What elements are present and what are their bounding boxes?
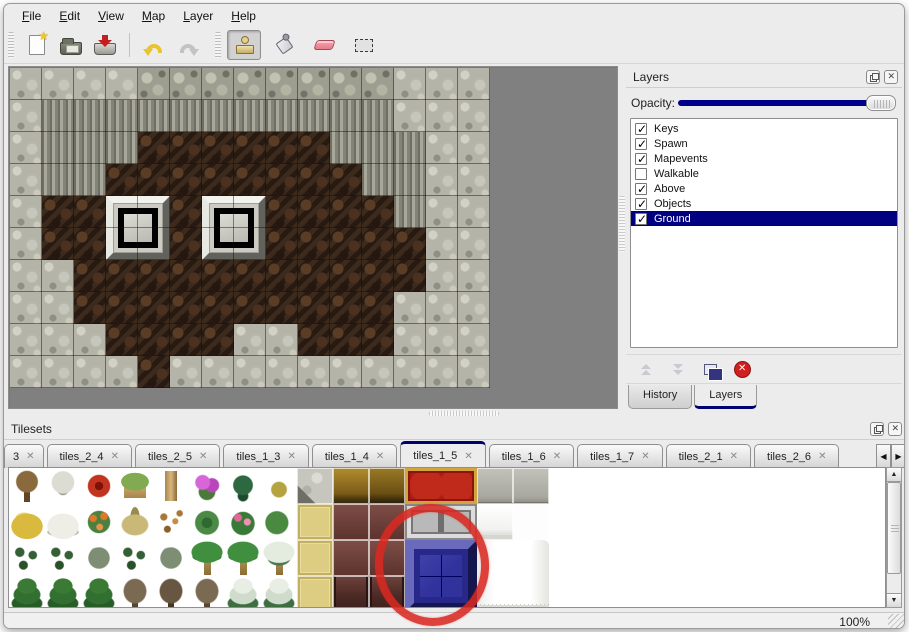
map-tile[interactable]: [10, 228, 42, 260]
tab-close-icon[interactable]: ✕: [26, 451, 34, 462]
menu-item-map[interactable]: Map: [134, 7, 173, 25]
scroll-down-icon[interactable]: ▼: [887, 593, 901, 607]
map-tile[interactable]: [170, 164, 202, 196]
toolbar-drag-handle-2[interactable]: [215, 32, 221, 58]
map-tile[interactable]: [298, 228, 330, 260]
duplicate-icon: [704, 364, 717, 375]
map-tile[interactable]: [106, 324, 138, 356]
tileset-tile-frame-silver[interactable]: [405, 504, 477, 540]
map-tile[interactable]: [458, 164, 490, 196]
tileset-tile-tree-dead[interactable]: [117, 576, 153, 608]
tileset-tab-tiles_1_6[interactable]: tiles_1_6 ✕: [489, 444, 574, 468]
tileset-tile-table-dark[interactable]: [369, 504, 405, 540]
layer-visibility-checkbox[interactable]: [635, 153, 647, 165]
map-tile[interactable]: [10, 260, 42, 292]
tileset-tab-tiles_1_3[interactable]: tiles_1_3 ✕: [223, 444, 308, 468]
layer-row-ground[interactable]: Ground: [631, 211, 897, 226]
scroll-up-icon[interactable]: ▲: [887, 468, 901, 482]
map-tile[interactable]: [234, 68, 266, 100]
tileset-tile-palm-snow[interactable]: [261, 540, 297, 576]
map-tile[interactable]: [362, 260, 394, 292]
tileset-tab-tiles_1_5[interactable]: tiles_1_5 ✕: [400, 441, 485, 468]
dock-tab-layers[interactable]: Layers: [694, 385, 757, 409]
map-tile[interactable]: [10, 196, 42, 228]
layer-name-label: Ground: [654, 213, 691, 225]
menu-item-edit[interactable]: Edit: [51, 7, 88, 25]
tileset-content[interactable]: [8, 467, 886, 608]
tileset-tile-lilypad-curl[interactable]: [261, 504, 297, 540]
map-tile[interactable]: [42, 356, 74, 388]
map-tile[interactable]: [170, 68, 202, 100]
map-tile[interactable]: [202, 100, 234, 132]
map-tile[interactable]: [234, 324, 266, 356]
map-tile[interactable]: [266, 324, 298, 356]
map-tile[interactable]: [10, 68, 42, 100]
map-tile[interactable]: [170, 100, 202, 132]
map-tile[interactable]: [138, 164, 170, 196]
save-file-button[interactable]: [88, 30, 122, 60]
map-tile[interactable]: [74, 164, 106, 196]
map-tile[interactable]: [298, 324, 330, 356]
map-tile[interactable]: [426, 68, 458, 100]
map-tile[interactable]: [426, 356, 458, 388]
tileset-tab-bar: 3 ✕ tiles_2_4 ✕ tiles_2_5 ✕ tiles_1_3 ✕ …: [4, 440, 905, 468]
tileset-tile-blue-tile[interactable]: [405, 540, 477, 608]
map-tile[interactable]: [394, 228, 426, 260]
tileset-tab-tiles_1_7[interactable]: tiles_1_7 ✕: [577, 444, 662, 468]
map-tile[interactable]: [10, 292, 42, 324]
tab-close-icon[interactable]: ✕: [111, 451, 119, 462]
map-tile[interactable]: [330, 228, 362, 260]
map-tile[interactable]: [362, 164, 394, 196]
tab-close-icon[interactable]: ✕: [818, 451, 826, 462]
open-file-button[interactable]: [54, 30, 88, 60]
map-tile[interactable]: [362, 356, 394, 388]
layer-duplicate-button[interactable]: [700, 359, 720, 379]
map-tile[interactable]: [394, 324, 426, 356]
map-tile[interactable]: [266, 260, 298, 292]
tileset-tile-mound-snow[interactable]: [45, 504, 81, 540]
map-tile[interactable]: [234, 292, 266, 324]
layers-panel-title: Layers: [626, 70, 866, 84]
layer-row-walkable[interactable]: Walkable: [631, 166, 897, 181]
tileset-tile-sprigs[interactable]: [117, 540, 153, 576]
map-tile[interactable]: [74, 132, 106, 164]
map-tile[interactable]: [426, 324, 458, 356]
map-tile[interactable]: [458, 356, 490, 388]
tileset-tile-stone-gray[interactable]: [477, 468, 513, 504]
map-tile[interactable]: [170, 260, 202, 292]
tileset-tab-label: tiles_1_5: [413, 450, 457, 462]
tileset-tile-sprigs[interactable]: [9, 540, 45, 576]
tileset-tab-label: tiles_2_4: [60, 451, 104, 463]
map-tile[interactable]: [330, 324, 362, 356]
map-tile[interactable]: [458, 260, 490, 292]
map-tile[interactable]: [426, 228, 458, 260]
save-icon: [94, 43, 116, 55]
tab-close-icon[interactable]: ✕: [199, 451, 207, 462]
fill-tool-button[interactable]: [267, 30, 301, 60]
map-tile[interactable]: [458, 68, 490, 100]
tileset-tile-bush-gray[interactable]: [81, 540, 117, 576]
map-tile[interactable]: [266, 228, 298, 260]
map-tile[interactable]: [170, 196, 202, 228]
tileset-tile-floor-gold[interactable]: [297, 540, 333, 576]
map-tile[interactable]: [10, 132, 42, 164]
map-tile[interactable]: [330, 196, 362, 228]
layer-visibility-checkbox[interactable]: [635, 213, 647, 225]
layers-titlebar: Layers: [626, 66, 902, 88]
map-tile[interactable]: [42, 228, 74, 260]
map-tile[interactable]: [394, 196, 426, 228]
opacity-slider[interactable]: [678, 94, 896, 112]
tileset-tile-table-dark[interactable]: [369, 540, 405, 576]
map-tile[interactable]: [298, 292, 330, 324]
eraser-icon: [313, 40, 335, 50]
select-tool-button[interactable]: [347, 30, 381, 60]
layer-visibility-checkbox[interactable]: [635, 198, 647, 210]
tileset-tile-pine[interactable]: [9, 576, 45, 608]
map-tile[interactable]: [330, 132, 362, 164]
layer-raise-button[interactable]: [636, 359, 656, 379]
map-tile[interactable]: [234, 164, 266, 196]
tileset-tile-floor-gold[interactable]: [297, 576, 333, 608]
tileset-tile-bush-pink[interactable]: [189, 468, 225, 504]
map-tile[interactable]: [362, 324, 394, 356]
undo-button[interactable]: [137, 30, 171, 60]
map-tile[interactable]: [42, 132, 74, 164]
map-tile[interactable]: [362, 196, 394, 228]
splitter-handle[interactable]: [429, 411, 499, 416]
map-tile[interactable]: [394, 356, 426, 388]
tab-close-icon[interactable]: ✕: [376, 451, 384, 462]
layer-row-above[interactable]: Above: [631, 181, 897, 196]
map-tile[interactable]: [42, 68, 74, 100]
tileset-tile-stump[interactable]: [117, 468, 153, 504]
map-tile[interactable]: [426, 196, 458, 228]
tileset-tab-label: 3: [13, 451, 19, 463]
close-panel-icon[interactable]: [888, 422, 902, 436]
layer-row-objects[interactable]: Objects: [631, 196, 897, 211]
layer-name-label: Objects: [654, 198, 691, 210]
tileset-tile-mound-yellow[interactable]: [9, 504, 45, 540]
map-tile[interactable]: [10, 324, 42, 356]
map-tile[interactable]: [298, 196, 330, 228]
menu-bar: FileEditViewMapLayerHelp: [4, 4, 904, 27]
tab-close-icon[interactable]: ✕: [287, 451, 295, 462]
tileset-tile-lilypad[interactable]: [189, 504, 225, 540]
map-tile[interactable]: [362, 228, 394, 260]
tileset-tile-tree-bare[interactable]: [9, 468, 45, 504]
map-tile[interactable]: [298, 132, 330, 164]
tab-scroll-right-button[interactable]: ▶: [891, 444, 905, 468]
tileset-tile-table-dark[interactable]: [333, 540, 369, 576]
map-tile[interactable]: [170, 324, 202, 356]
app-window: FileEditViewMapLayerHelp Layers: [3, 3, 905, 629]
tileset-tile-table-leg[interactable]: [369, 576, 405, 608]
map-tile[interactable]: [106, 292, 138, 324]
tileset-tab-label: tiles_1_7: [590, 451, 634, 463]
map-tile[interactable]: [234, 100, 266, 132]
tileset-tile-floor-gold[interactable]: [297, 504, 333, 540]
map-tile[interactable]: [138, 356, 170, 388]
map-tile[interactable]: [266, 100, 298, 132]
map-tile[interactable]: [298, 356, 330, 388]
resize-grip[interactable]: [888, 614, 904, 628]
tileset-tile-flower-red[interactable]: [81, 468, 117, 504]
map-tile[interactable]: [234, 356, 266, 388]
map-tile[interactable]: [330, 68, 362, 100]
map-tile[interactable]: [42, 196, 74, 228]
tileset-tile-sprigs[interactable]: [45, 540, 81, 576]
float-panel-icon[interactable]: [870, 422, 884, 436]
tileset-tile-curtain-small[interactable]: [477, 504, 513, 540]
opacity-slider-track[interactable]: [678, 100, 896, 106]
map-tile[interactable]: [138, 68, 170, 100]
menu-item-help[interactable]: Help: [223, 7, 264, 25]
map-tile[interactable]: [138, 292, 170, 324]
map-tile[interactable]: [458, 100, 490, 132]
tileset-tab-tiles_2_6[interactable]: tiles_2_6 ✕: [754, 444, 839, 468]
map-tile[interactable]: [74, 356, 106, 388]
map-tile[interactable]: [106, 164, 138, 196]
tileset-tile-wood-brown[interactable]: [333, 468, 369, 504]
tileset-tab-tiles_2_1[interactable]: tiles_2_1 ✕: [666, 444, 751, 468]
map-tile[interactable]: [202, 260, 234, 292]
menu-item-file[interactable]: File: [14, 7, 49, 25]
map-tile[interactable]: [170, 228, 202, 260]
layer-row-keys[interactable]: Keys: [631, 121, 897, 136]
tileset-tile-pine-snow[interactable]: [261, 576, 297, 608]
tileset-scrollbar[interactable]: ▲ ▼: [886, 467, 902, 608]
new-file-button[interactable]: [20, 30, 54, 60]
map-tile[interactable]: [42, 292, 74, 324]
tileset-tile-table-dark[interactable]: [333, 504, 369, 540]
map-tile[interactable]: [362, 132, 394, 164]
map-tile[interactable]: [138, 100, 170, 132]
map-tile[interactable]: [202, 132, 234, 164]
map-tile[interactable]: [234, 132, 266, 164]
tileset-tile-carpet-red[interactable]: [405, 468, 477, 504]
menu-item-view[interactable]: View: [90, 7, 132, 25]
map-tile[interactable]: [426, 292, 458, 324]
layer-visibility-checkbox[interactable]: [635, 183, 647, 195]
menu-item-layer[interactable]: Layer: [175, 7, 221, 25]
tab-close-icon[interactable]: ✕: [730, 451, 738, 462]
float-panel-icon[interactable]: [866, 70, 880, 84]
map-tile[interactable]: [330, 260, 362, 292]
map-tile[interactable]: [298, 164, 330, 196]
tileset-tile-flowers-orange[interactable]: [81, 504, 117, 540]
map-tile[interactable]: [170, 292, 202, 324]
map-tile[interactable]: [266, 292, 298, 324]
tab-close-icon[interactable]: ✕: [641, 451, 649, 462]
map-tile[interactable]: [330, 292, 362, 324]
map-tile[interactable]: [202, 68, 234, 100]
stamp-icon: [235, 36, 253, 54]
dock-tab-history[interactable]: History: [628, 385, 692, 409]
map-tile[interactable]: [42, 164, 74, 196]
layer-visibility-checkbox[interactable]: [635, 138, 647, 150]
tileset-tile-tree-dead[interactable]: [189, 576, 225, 608]
map-tile[interactable]: [458, 132, 490, 164]
layer-visibility-checkbox[interactable]: [635, 168, 647, 180]
map-tile[interactable]: [106, 100, 138, 132]
map-tile[interactable]: [202, 292, 234, 324]
tileset-tab-3[interactable]: 3 ✕: [4, 444, 44, 468]
map-tile[interactable]: [298, 68, 330, 100]
map-tile[interactable]: [394, 132, 426, 164]
map-tile[interactable]: [266, 356, 298, 388]
tileset-tile-tree-frost[interactable]: [45, 468, 81, 504]
tileset-tab-tiles_2_4[interactable]: tiles_2_4 ✕: [47, 444, 132, 468]
stamp-tool-button[interactable]: [227, 30, 261, 60]
tileset-tile-stone-gray[interactable]: [513, 468, 549, 504]
tileset-tile-bush-gray[interactable]: [153, 540, 189, 576]
tileset-tab-label: tiles_2_6: [767, 451, 811, 463]
map-window-tile: [106, 196, 170, 260]
tileset-tile-curtain-big[interactable]: [477, 540, 549, 608]
map-tile[interactable]: [394, 164, 426, 196]
layer-name-label: Spawn: [654, 138, 688, 150]
map-tile[interactable]: [74, 196, 106, 228]
paint-bucket-icon: [275, 36, 293, 54]
tileset-tile-table-leg[interactable]: [333, 576, 369, 608]
map-tile[interactable]: [234, 260, 266, 292]
zoom-level-label: 100%: [839, 615, 870, 629]
map-tile[interactable]: [266, 164, 298, 196]
map-tile[interactable]: [266, 196, 298, 228]
map-tile[interactable]: [170, 356, 202, 388]
map-tile[interactable]: [106, 68, 138, 100]
vertical-splitter[interactable]: [618, 66, 626, 409]
opacity-slider-thumb[interactable]: [866, 95, 896, 111]
tileset-tab-label: tiles_1_4: [325, 451, 369, 463]
layer-lower-button[interactable]: [668, 359, 688, 379]
map-tile[interactable]: [10, 100, 42, 132]
toolbar-drag-handle[interactable]: [8, 32, 14, 58]
map-tile[interactable]: [138, 260, 170, 292]
map-tile[interactable]: [266, 68, 298, 100]
map-tile[interactable]: [202, 324, 234, 356]
map-tile[interactable]: [42, 324, 74, 356]
tileset-tile-trunk[interactable]: [153, 468, 189, 504]
map-tile[interactable]: [362, 292, 394, 324]
map-tile[interactable]: [394, 100, 426, 132]
tileset-tile-grass-dry[interactable]: [117, 504, 153, 540]
tileset-tile-blank-white[interactable]: [513, 504, 549, 540]
new-file-icon: [29, 35, 45, 55]
map-tile[interactable]: [394, 292, 426, 324]
tab-scroll-left-button[interactable]: ◀: [876, 444, 891, 468]
map-tile[interactable]: [170, 132, 202, 164]
map-tile[interactable]: [138, 324, 170, 356]
splitter-handle[interactable]: [619, 196, 625, 252]
tileset-tile-wood-brown2[interactable]: [369, 468, 405, 504]
tileset-tile-roses-pink[interactable]: [225, 504, 261, 540]
layer-visibility-checkbox[interactable]: [635, 123, 647, 135]
tileset-tile-pine[interactable]: [45, 576, 81, 608]
map-tile[interactable]: [426, 260, 458, 292]
delete-icon: [734, 361, 751, 378]
layer-actions: [626, 354, 902, 384]
map-tile[interactable]: [298, 260, 330, 292]
map-tile[interactable]: [74, 324, 106, 356]
tileset-tab-label: tiles_2_1: [679, 451, 723, 463]
map-tile[interactable]: [74, 68, 106, 100]
redo-button[interactable]: [171, 30, 205, 60]
map-tile[interactable]: [74, 100, 106, 132]
map-tile[interactable]: [10, 164, 42, 196]
tab-close-icon[interactable]: ✕: [553, 451, 561, 462]
map-tile[interactable]: [298, 100, 330, 132]
map-canvas-panel[interactable]: [8, 66, 618, 409]
map-tile[interactable]: [426, 164, 458, 196]
map-tile[interactable]: [426, 100, 458, 132]
layer-delete-button[interactable]: [732, 359, 752, 379]
tileset-tab-tiles_1_4[interactable]: tiles_1_4 ✕: [312, 444, 397, 468]
tileset-tab-tiles_2_5[interactable]: tiles_2_5 ✕: [135, 444, 220, 468]
eraser-tool-button[interactable]: [307, 30, 341, 60]
map-tile[interactable]: [42, 260, 74, 292]
map-tile[interactable]: [106, 132, 138, 164]
layer-row-spawn[interactable]: Spawn: [631, 136, 897, 151]
map-tile[interactable]: [138, 132, 170, 164]
map-tile[interactable]: [458, 196, 490, 228]
layer-name-label: Walkable: [654, 168, 699, 180]
map-tile[interactable]: [330, 164, 362, 196]
map-tile[interactable]: [106, 260, 138, 292]
tilesets-panel-title: Tilesets: [4, 422, 870, 436]
map-tile[interactable]: [74, 292, 106, 324]
layer-row-mapevents[interactable]: Mapevents: [631, 151, 897, 166]
map-tile[interactable]: [266, 132, 298, 164]
tileset-tile-leaves[interactable]: [153, 504, 189, 540]
map-tile[interactable]: [330, 100, 362, 132]
tileset-tile-sprig-yellow[interactable]: [261, 468, 297, 504]
map-tile[interactable]: [74, 228, 106, 260]
tileset-tile-palm[interactable]: [189, 540, 225, 576]
map-tile[interactable]: [458, 228, 490, 260]
map-tile[interactable]: [426, 132, 458, 164]
map-tile[interactable]: [202, 164, 234, 196]
map-tile[interactable]: [330, 356, 362, 388]
redo-icon: [180, 44, 196, 53]
map-tile[interactable]: [458, 324, 490, 356]
tileset-tile-pine[interactable]: [81, 576, 117, 608]
tab-close-icon[interactable]: ✕: [464, 451, 472, 462]
map-tile[interactable]: [42, 100, 74, 132]
map-tile[interactable]: [394, 68, 426, 100]
map-tile[interactable]: [458, 292, 490, 324]
tileset-tile-stone-corner[interactable]: [297, 468, 333, 504]
tileset-tile-tree-dead2[interactable]: [153, 576, 189, 608]
map-tile[interactable]: [106, 356, 138, 388]
map-tile[interactable]: [10, 356, 42, 388]
tileset-tile-pine-snow[interactable]: [225, 576, 261, 608]
map-tile[interactable]: [202, 356, 234, 388]
tileset-tile-fern[interactable]: [225, 468, 261, 504]
map-tile[interactable]: [362, 100, 394, 132]
map-tile[interactable]: [362, 68, 394, 100]
map-tile[interactable]: [74, 260, 106, 292]
close-panel-icon[interactable]: [884, 70, 898, 84]
tileset-tile-palm[interactable]: [225, 540, 261, 576]
map-tile[interactable]: [394, 260, 426, 292]
horizontal-splitter[interactable]: [4, 409, 905, 418]
scrollbar-thumb[interactable]: [887, 482, 901, 574]
undo-icon: [146, 44, 162, 53]
